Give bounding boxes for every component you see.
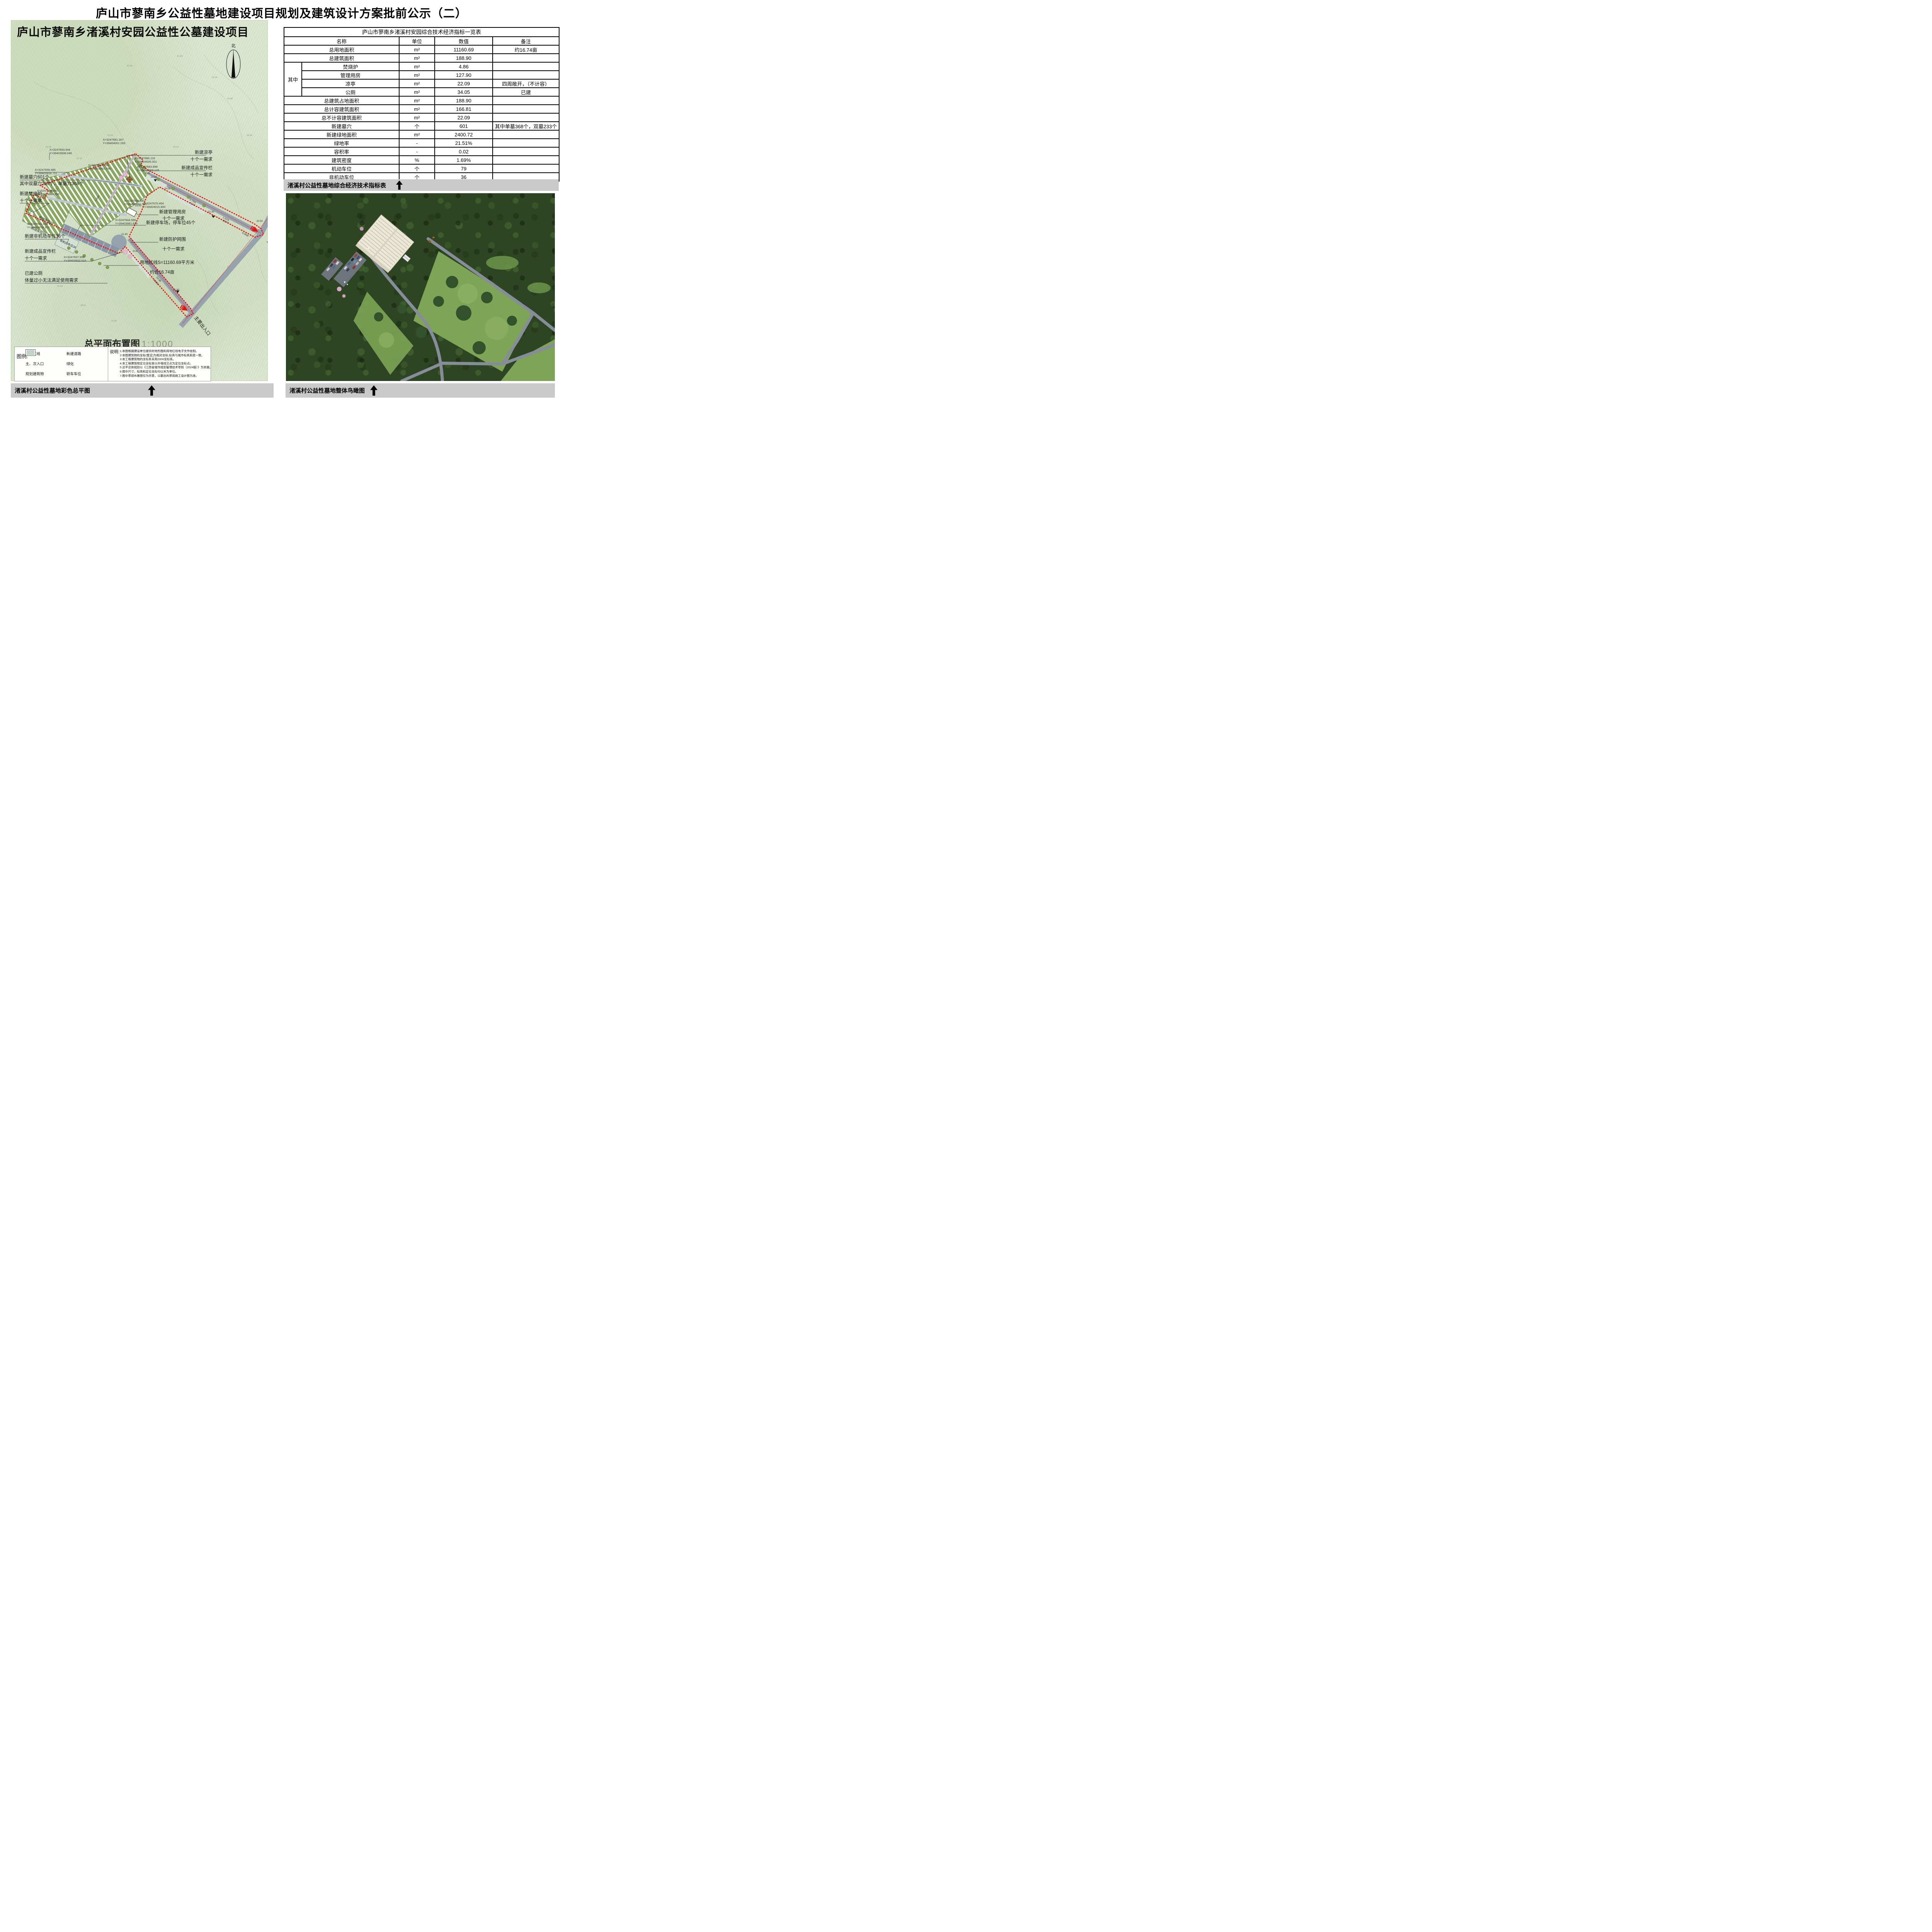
table-row: 其中 焚烧炉m²4.86 (284, 62, 559, 71)
legend-item-parking: 轿车车位 (66, 369, 107, 378)
svg-text:Y=39404001.293: Y=39404001.293 (103, 141, 125, 145)
parking-icon (26, 349, 36, 356)
annotation-bulletin-right: 新建成品宣传栏 (182, 165, 213, 170)
col-header-value: 数值 (435, 37, 493, 45)
legend-item-road: 新建道路 (66, 349, 107, 358)
svg-text:X=3247658.481: X=3247658.481 (124, 199, 145, 202)
annotation-bulletin-left-need: 十个一需求 (25, 255, 47, 261)
table-title: 庐山市蓼南乡渚溪村安园综合技术经济指标一览表 (284, 27, 559, 37)
annotation-fence: 新建防护网围 (159, 236, 186, 242)
table-row: 总用地面积m²11160.69约16.74亩 (284, 45, 559, 54)
up-arrow-icon (370, 385, 378, 396)
svg-text:Y=39403922.515: Y=39403922.515 (64, 259, 86, 262)
notes-panel: 说明: 1:本图根据建设单位提供的地形图和用地红线电子文件绘制。 2:本图建筑物… (108, 347, 211, 381)
site-plan-drawing: 22.44 21.93 22.18 23.40 25.04 22.20 23.3… (11, 20, 268, 381)
table-row: 绿地率-21.51% (284, 139, 559, 147)
plan-caption-bar: 渚溪村公益性墓地彩色总平图 (11, 383, 274, 398)
svg-text:X=3247681.307: X=3247681.307 (103, 138, 124, 141)
note-line: 7:图中景观布置图仅为示意，以最后的景观施工设计图为准。 (120, 374, 209, 378)
table-row: 总建筑占地面积m²188.90 (284, 96, 559, 105)
svg-text:6.00m: 6.00m (241, 232, 249, 238)
up-arrow-icon (396, 180, 403, 190)
annotation-parking45: 新建停车场，停车位45个 (146, 220, 196, 225)
incinerator (30, 212, 34, 215)
plan-title: 庐山市蓼南乡渚溪村安园公益性公墓建设项目 (17, 23, 249, 39)
svg-text:21.64: 21.64 (57, 285, 63, 287)
svg-text:X=3247644.566: X=3247644.566 (115, 218, 136, 222)
entrance-label-2: 主要出入口 (193, 315, 212, 337)
annotation-incinerator-need: 十个一需求 (20, 198, 42, 203)
svg-text:22.44: 22.44 (127, 65, 133, 67)
svg-text:22.13: 22.13 (173, 146, 179, 148)
svg-text:Y=39403992.798: Y=39403992.798 (88, 167, 111, 170)
legend-item-building: 规划建筑物 (26, 369, 66, 378)
svg-text:Y=39403981.625: Y=39403981.625 (115, 222, 138, 225)
table-caption-text: 渚溪村公益性墓地综合经济技术指标表 (287, 181, 386, 189)
up-arrow-icon (148, 385, 155, 396)
note-line: 4:本工程建筑物定位坐标是以外墙线交点为定位坐标点。 (120, 362, 209, 366)
table-row: 总不计容建筑面积m²22.09 (284, 113, 559, 122)
svg-text:X=3247648.940: X=3247648.940 (37, 189, 58, 192)
svg-text:P=4: P=4 (133, 250, 138, 253)
svg-text:25.04: 25.04 (247, 134, 252, 137)
svg-text:Y=39403878.373: Y=39403878.373 (27, 226, 49, 229)
aerial-building (402, 254, 411, 262)
svg-text:21.42: 21.42 (77, 158, 82, 160)
svg-text:X=3247665.438: X=3247665.438 (88, 163, 109, 167)
svg-text:22.20: 22.20 (107, 134, 113, 137)
svg-text:P=29: P=29 (165, 187, 171, 190)
aerial-render-drawing (286, 193, 555, 381)
svg-text:X=3247658.485: X=3247658.485 (35, 168, 56, 172)
render-caption-bar: 渚溪村公益性墓地整体鸟瞰图 (286, 383, 555, 398)
svg-text:Y=39404005.001: Y=39404005.001 (134, 160, 157, 163)
svg-text:Y=39403888.056: Y=39403888.056 (37, 192, 60, 196)
north-arrow: 北 (226, 43, 240, 78)
aerial-parking (321, 243, 366, 291)
page-title: 庐山市蓼南乡公益性墓地建设项目规划及建筑设计方案批前公示（二） (0, 4, 563, 21)
svg-text:22.00: 22.00 (151, 176, 157, 179)
note-line: 6:图中尺寸，标高和定位坐标均以米为单位。 (120, 370, 209, 374)
svg-text:20.50: 20.50 (257, 220, 263, 223)
svg-text:22.30: 22.30 (208, 211, 214, 213)
annotation-toilet: 已建公厕 (25, 270, 43, 276)
notes-list: 1:本图根据建设单位提供的地形图和用地红线电子文件绘制。 2:本图建筑物的坐标(… (120, 349, 209, 378)
svg-text:20.61: 20.61 (80, 304, 86, 307)
legend-panel: 图例: 用地红线 新建道路 主、次入口 绿化 (14, 347, 109, 381)
aerial-render (286, 193, 555, 381)
indicator-table: 庐山市蓼南乡渚溪村安园综合技术经济指标一览表 名称 单位 数值 备注 总用地面积… (284, 27, 560, 182)
svg-text:P=6: P=6 (145, 172, 150, 175)
col-header-unit: 单位 (399, 37, 435, 45)
table-row: 机动车位个79 (284, 164, 559, 173)
svg-text:21.60: 21.60 (121, 233, 128, 236)
svg-text:Y=39403936.046: Y=39403936.046 (49, 151, 72, 155)
table-row: 建筑密度%1.69% (284, 156, 559, 164)
plan-caption-text: 渚溪村公益性墓地彩色总平图 (15, 386, 90, 395)
annotation-bulletin-left: 新建成品宣传栏 (25, 248, 56, 254)
annotation-pavilion: 新建凉亭 (195, 150, 213, 155)
svg-text:21.56: 21.56 (111, 320, 117, 322)
svg-text:22.18: 22.18 (212, 77, 218, 79)
notes-heading: 说明: (110, 349, 119, 355)
note-line: 3:本工程建筑物的坐标系采用2000坐标系。 (120, 357, 209, 362)
annotation-mgmt-need: 十个一需求 (162, 216, 185, 221)
annotation-mgmt: 新建管理用房 (159, 209, 186, 214)
table-row: 总计容建筑面积m²166.81 (284, 105, 559, 113)
site-plan-panel: 22.44 21.93 22.18 23.40 25.04 22.20 23.3… (11, 20, 268, 381)
table-row: 管理用房m²127.90 (284, 71, 559, 79)
col-header-name: 名称 (284, 37, 399, 45)
legend-item-greenery: 绿化 (66, 359, 107, 368)
table-caption-bar: 渚溪村公益性墓地综合经济技术指标表 (284, 179, 559, 191)
note-line: 5:总平总体规划以《江西省城市规划管理技术导则（2024版）》为依据。 (120, 366, 209, 370)
svg-text:21.50: 21.50 (135, 204, 141, 207)
legend-grid: 用地红线 新建道路 主、次入口 绿化 规划建筑物 (26, 349, 107, 378)
annotation-redline-sub: 约合16.74亩 (150, 269, 174, 275)
group-cell-qizhong: 其中 (284, 62, 302, 96)
svg-text:X=3247686.116: X=3247686.116 (134, 156, 155, 160)
annotation-redline: 用地红线S=11160.69平方米 (140, 260, 195, 265)
aerial-cemetery (355, 215, 414, 273)
annotation-pavilion-need: 十个一需求 (190, 156, 213, 162)
col-header-note: 备注 (493, 37, 559, 45)
note-line: 1:本图根据建设单位提供的地形图和用地红线电子文件绘制。 (120, 349, 209, 354)
table-row: 公厕m²34.05已建 (284, 88, 559, 96)
note-line: 2:本图建筑物的坐标(暂定)为相对坐标,标高与城市标高系统一致。 (120, 354, 209, 358)
render-caption-text: 渚溪村公益性墓地整体鸟瞰图 (289, 386, 365, 395)
svg-text:23.40: 23.40 (227, 98, 233, 100)
svg-text:X=3247607.950: X=3247607.950 (64, 255, 85, 259)
annotation-bulletin-right-need: 十个一需求 (190, 172, 213, 177)
table-row: 新建墓穴个601其中单墓368个，双墓233个 (284, 122, 559, 130)
svg-text:X=3247631.648: X=3247631.648 (27, 222, 48, 226)
table-row: 新建绿地面积m²2400.72 (284, 130, 559, 139)
svg-text:X=3247693.344: X=3247693.344 (49, 148, 70, 151)
svg-text:北: 北 (231, 43, 236, 48)
public-notice-page: 庐山市蓼南乡公益性墓地建设项目规划及建筑设计方案批前公示（二） (0, 0, 563, 398)
svg-text:21.93: 21.93 (177, 55, 183, 58)
annotation-new-graves: 新建墓穴601个 (20, 174, 49, 180)
legend-item-entrance: 主、次入口 (26, 359, 66, 368)
table-row: 凉亭m²22.09四周敞开，（不计容） (284, 79, 559, 88)
svg-text:Y=39404009.145: Y=39404009.145 (137, 168, 159, 172)
entrance-label-1: 主要出入口 (266, 238, 268, 260)
table-row: 总建筑面积m²188.90 (284, 54, 559, 62)
annotation-toilet-sub: 体量过小无法满足使用需求 (25, 277, 78, 283)
management-building (126, 207, 137, 217)
table-row: 容积率-0.02 (284, 147, 559, 156)
annotation-fence-need: 十个一需求 (162, 246, 185, 252)
svg-text:Y=39403916.711: Y=39403916.711 (35, 172, 57, 175)
table-header-row: 名称 单位 数值 备注 (284, 37, 559, 45)
annotation-new-graves-sub: 其中双墓穴233个，单墓穴368个 (20, 181, 83, 186)
